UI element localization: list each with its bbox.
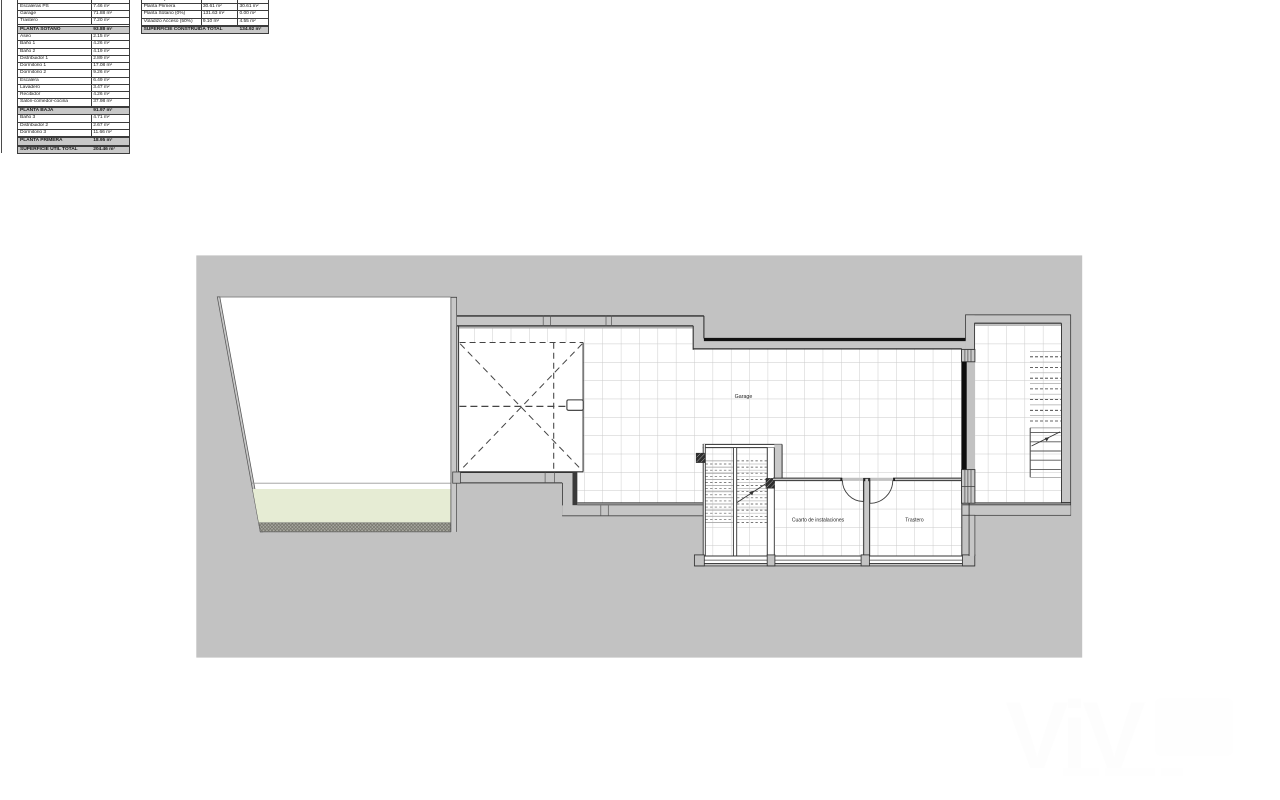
svg-text:Trastero: Trastero <box>905 518 924 524</box>
svg-text:Cuarto de instalaciones: Cuarto de instalaciones <box>792 518 845 524</box>
svg-text:Garage: Garage <box>735 394 753 400</box>
